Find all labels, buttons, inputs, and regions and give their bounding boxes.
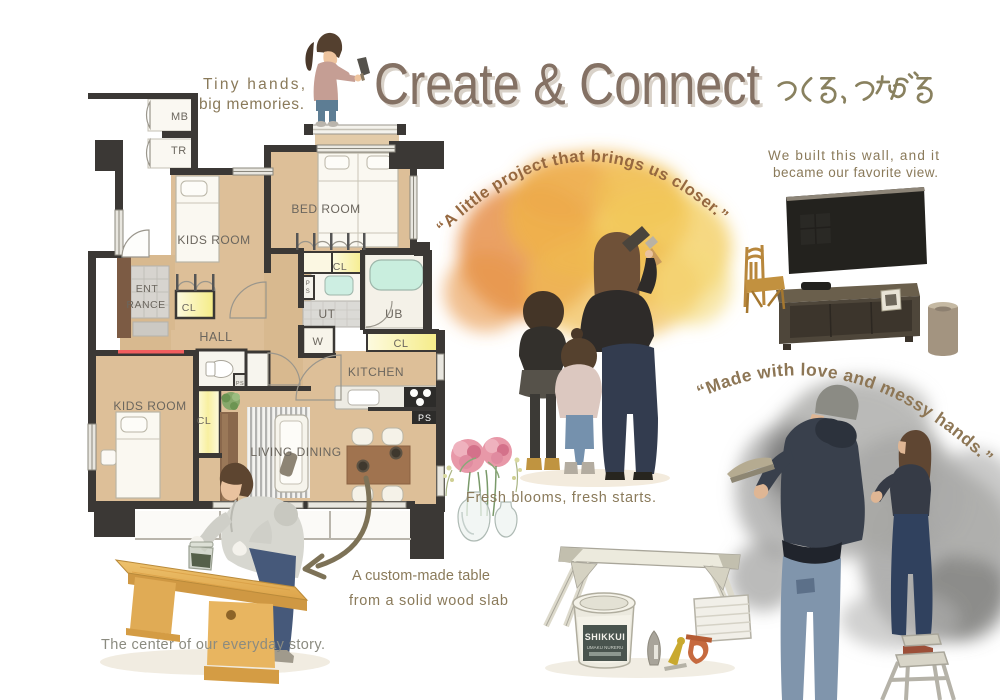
svg-text:BED ROOM: BED ROOM [291, 202, 360, 216]
svg-text:HALL: HALL [199, 330, 232, 344]
svg-text:TR: TR [171, 145, 187, 157]
svg-text:Create & Connect: Create & Connect [374, 52, 760, 117]
svg-text:Tiny hands,: Tiny hands, [203, 76, 306, 93]
svg-text:P: P [306, 281, 311, 287]
svg-text:LIVING DINING: LIVING DINING [250, 445, 341, 459]
svg-text:became our favorite view.: became our favorite view. [773, 165, 939, 180]
svg-text:CL: CL [197, 415, 211, 427]
svg-text:We built this wall, and it: We built this wall, and it [768, 148, 940, 163]
svg-text:from a solid wood slab: from a solid wood slab [349, 593, 509, 609]
svg-text:W: W [313, 336, 324, 348]
svg-text:Fresh blooms, fresh starts.: Fresh blooms, fresh starts. [466, 490, 657, 506]
svg-text:big memories.: big memories. [199, 96, 305, 113]
svg-text:MB: MB [171, 111, 189, 123]
svg-text:KITCHEN: KITCHEN [348, 365, 404, 379]
svg-text:ENT: ENT [136, 283, 159, 295]
svg-text:S: S [306, 289, 311, 295]
svg-text:KIDS ROOM: KIDS ROOM [177, 233, 250, 247]
svg-text:PS: PS [418, 413, 432, 423]
svg-text:UMAKU NURERU: UMAKU NURERU [587, 645, 624, 650]
svg-text:KIDS ROOM: KIDS ROOM [113, 399, 186, 413]
svg-text:UB: UB [385, 307, 403, 321]
svg-text:The center of our everyday sto: The center of our everyday story. [101, 637, 326, 653]
svg-text:A custom-made table: A custom-made table [352, 568, 491, 584]
svg-text:CL: CL [182, 302, 196, 314]
svg-text:CL: CL [333, 261, 347, 273]
svg-text:PS: PS [236, 381, 244, 387]
svg-text:RANCE: RANCE [126, 299, 165, 311]
svg-text:SHIKKUI: SHIKKUI [585, 632, 626, 642]
svg-text:UT: UT [319, 307, 336, 321]
svg-text:CL: CL [393, 338, 408, 350]
